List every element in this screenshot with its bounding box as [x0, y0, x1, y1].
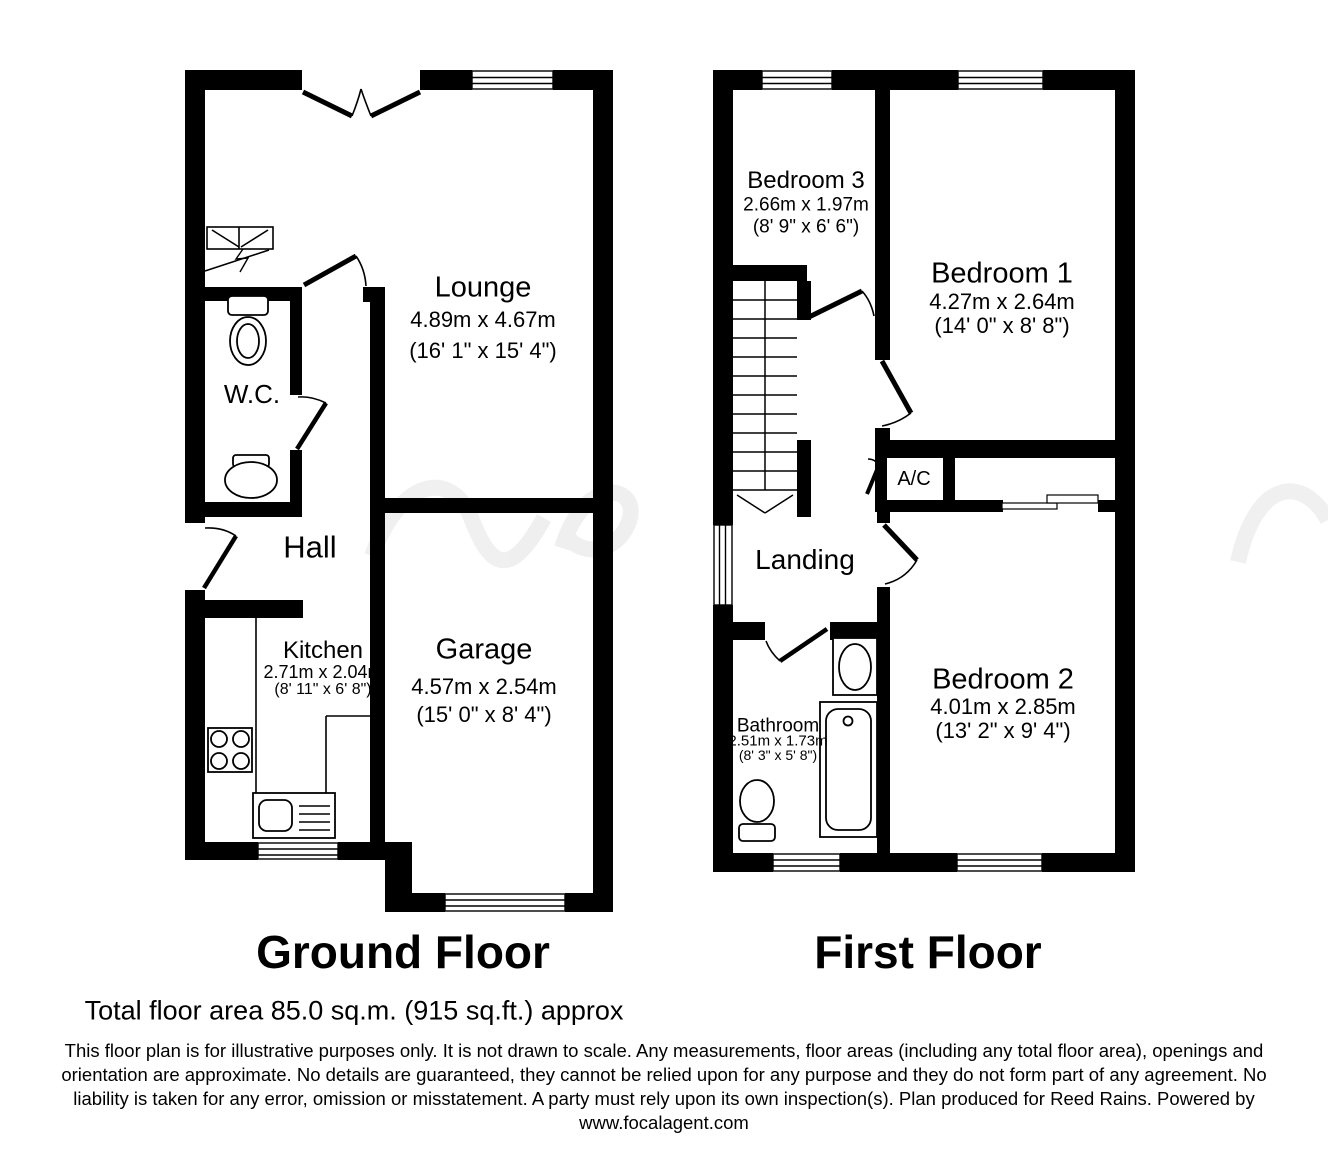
room-dims-kitchen-imperial: (8' 11" x 6' 8") [274, 682, 371, 698]
landing-window [714, 525, 732, 605]
kitchen-sink-icon [253, 793, 335, 838]
bedroom3-window [762, 71, 832, 89]
room-dims-bedroom3-metric: 2.66m x 1.97m [743, 196, 869, 215]
wardrobe-sliding-doors [1002, 495, 1098, 509]
first-doors [766, 291, 917, 661]
bath-icon [820, 702, 877, 837]
bedroom3-door [809, 291, 874, 317]
room-label-ac: A/C [897, 469, 930, 489]
room-dims-bedroom2-imperial: (13' 2" x 9' 4") [935, 720, 1070, 742]
room-dims-lounge-metric: 4.89m x 4.67m [410, 309, 556, 331]
room-label-lounge: Lounge [435, 274, 532, 303]
room-dims-bedroom3-imperial: (8' 9" x 6' 6") [753, 218, 859, 237]
disclaimer-line-3: liability is taken for any error, omissi… [73, 1090, 1254, 1109]
room-dims-bedroom1-imperial: (14' 0" x 8' 8") [934, 315, 1069, 337]
room-dims-garage-metric: 4.57m x 2.54m [411, 676, 557, 698]
website-url: www.focalagent.com [579, 1114, 749, 1133]
hob-icon [208, 728, 252, 772]
bathroom-sink-icon [833, 638, 877, 695]
ground-floor-title: Ground Floor [256, 929, 550, 975]
room-label-hall: Hall [283, 532, 336, 563]
floor-plan-page: Lounge 4.89m x 4.67m (16' 1" x 15' 4") W… [0, 0, 1328, 1151]
room-label-landing: Landing [755, 546, 855, 574]
lounge-door [304, 256, 366, 286]
room-label-kitchen: Kitchen [283, 639, 363, 663]
first-floor-title: First Floor [814, 929, 1041, 975]
total-floor-area: Total floor area 85.0 sq.m. (915 sq.ft.)… [85, 998, 624, 1025]
room-dims-bathroom-imperial: (8' 3" x 5' 8") [739, 748, 817, 762]
bathroom-door [766, 629, 827, 661]
wc-door [297, 397, 326, 449]
disclaimer-line-1: This floor plan is for illustrative purp… [65, 1042, 1264, 1061]
room-label-bedroom3: Bedroom 3 [747, 169, 864, 193]
french-doors [303, 89, 420, 116]
front-door [204, 528, 236, 588]
room-label-garage: Garage [436, 636, 533, 665]
room-dims-bedroom1-metric: 4.27m x 2.64m [929, 291, 1075, 313]
ground-floor-plan [185, 70, 613, 912]
room-dims-lounge-imperial: (16' 1" x 15' 4") [409, 340, 557, 362]
first-stairs-icon [733, 281, 797, 513]
bedroom1-door [882, 361, 911, 426]
ground-stairs-icon [205, 227, 273, 272]
room-label-bedroom2: Bedroom 2 [932, 666, 1074, 695]
bathroom-window [773, 854, 840, 871]
bedroom2-window [957, 854, 1042, 871]
bedroom2-door [884, 525, 917, 584]
room-dims-garage-imperial: (15' 0" x 8' 4") [416, 704, 551, 726]
wc-toilet-icon [228, 296, 268, 365]
floor-plan-drawing [0, 0, 1328, 1151]
wc-sink-icon [225, 455, 277, 498]
room-label-bedroom1: Bedroom 1 [931, 260, 1073, 289]
garage-window [445, 894, 565, 911]
room-dims-kitchen-metric: 2.71m x 2.04m [263, 663, 382, 681]
lounge-window [472, 71, 553, 89]
bedroom1-window [958, 71, 1043, 89]
disclaimer-line-2: orientation are approximate. No details … [61, 1066, 1266, 1085]
bathroom-toilet-icon [739, 780, 775, 841]
room-dims-bedroom2-metric: 4.01m x 2.85m [930, 696, 1076, 718]
room-label-wc: W.C. [224, 381, 280, 407]
kitchen-window [258, 843, 338, 859]
